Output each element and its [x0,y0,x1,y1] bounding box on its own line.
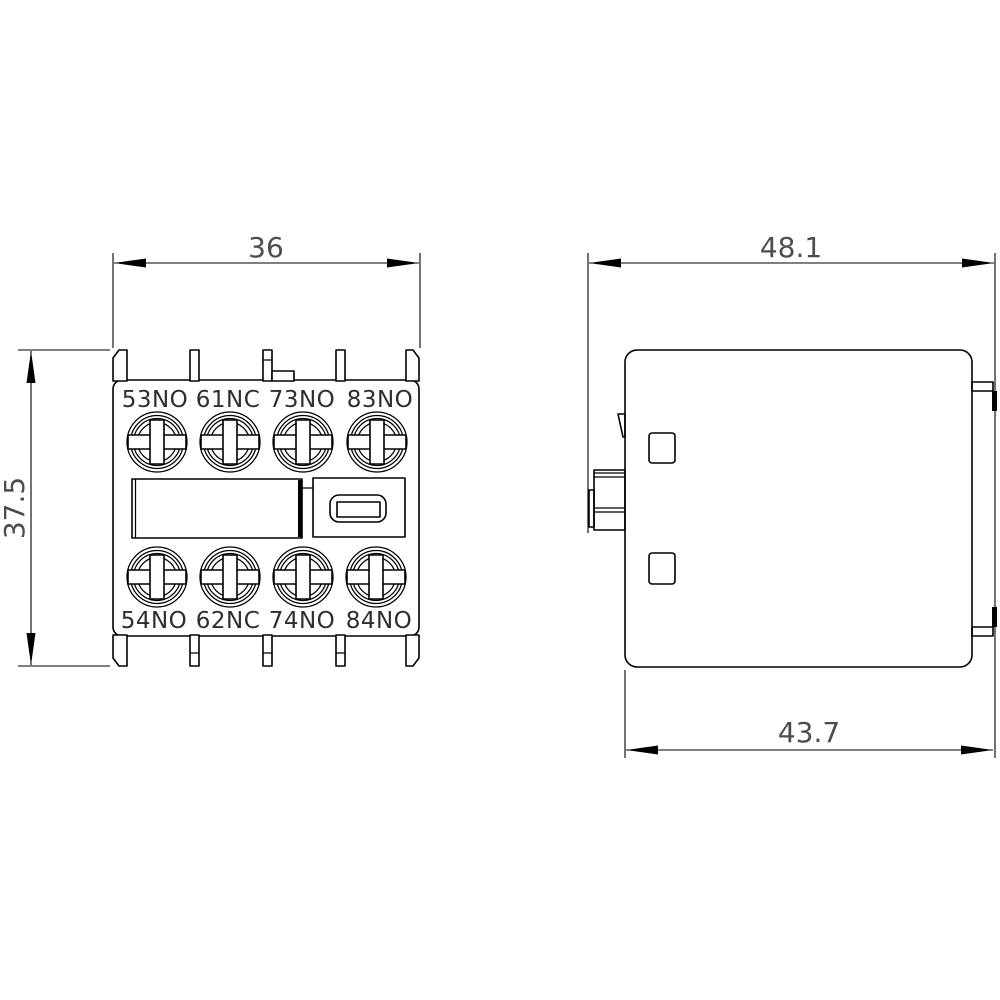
terminal-label: 84NO [346,608,413,634]
screw-terminal [127,547,187,607]
terminal-label: 74NO [269,608,336,634]
screw-terminal [127,412,187,472]
side-square-recess [649,433,675,463]
bottom-tab [263,635,272,666]
dim-front-height: 37.5 [0,350,110,666]
screw-terminal [273,547,333,607]
dim-side-overall: 48.1 [588,231,995,758]
screw-terminal [347,412,407,472]
dim-label-width: 36 [248,231,284,264]
side-terminal-block [589,470,625,530]
rear-tab [972,382,993,391]
latch-window-outer [330,495,386,522]
dim-label-body-depth: 43.7 [778,716,840,749]
top-tab [406,350,419,381]
drawing-page: 53NO 61NC 73NO 83NO [0,0,1000,1000]
top-tab [336,350,345,381]
label-field [132,479,302,538]
front-bottom-terminal-labels: 54NO 62NC 74NO 84NO [121,608,413,634]
dim-label-overall-depth: 48.1 [760,231,822,264]
front-top-screws [127,412,407,472]
bottom-tab [190,635,199,666]
dim-front-width: 36 [113,231,420,348]
side-square-recess [649,553,675,584]
screw-terminal [200,412,260,472]
bottom-tab [113,635,127,666]
top-tab-step [272,371,294,381]
top-tab [263,350,272,381]
side-block-tab [589,490,594,527]
terminal-label: 62NC [196,608,261,634]
top-tab [190,350,199,381]
front-top-terminal-labels: 53NO 61NC 73NO 83NO [122,387,414,413]
screw-terminal [273,412,333,472]
terminal-label: 54NO [121,608,188,634]
terminal-label: 73NO [269,387,336,413]
front-top-tabs [113,350,419,381]
rear-tab [972,627,993,636]
terminal-label: 53NO [122,387,189,413]
bottom-tab [336,635,345,666]
front-bottom-tabs [113,635,419,666]
latch-field [313,478,405,537]
latch-window-inner [337,502,380,517]
terminal-label: 61NC [196,387,261,413]
screw-terminal [200,547,260,607]
terminal-label: 83NO [347,387,414,413]
latch-hook [618,414,625,437]
front-middle-area [132,478,405,538]
front-view: 53NO 61NC 73NO 83NO [0,231,420,666]
screw-terminal [346,547,406,607]
side-rear-tabs [972,382,997,636]
dim-side-body: 43.7 [625,670,993,758]
side-body-outline [625,350,972,667]
dim-label-height: 37.5 [0,477,31,539]
dimension-drawing-canvas: 53NO 61NC 73NO 83NO [0,0,1000,1000]
bottom-tab [406,635,419,666]
side-view: 48.1 43.7 [588,231,997,758]
front-bottom-screws [127,547,406,607]
top-tab [113,350,127,381]
